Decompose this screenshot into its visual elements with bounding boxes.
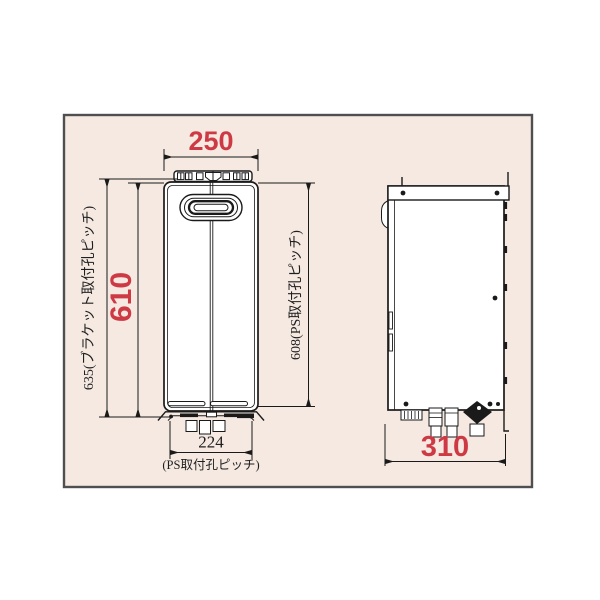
bottom-pitch-value: 224 — [198, 433, 224, 452]
side-view — [382, 172, 510, 437]
bracket-pitch-label: 635(ブラケット取付孔ピッチ) — [80, 206, 97, 391]
front-exhaust-vent — [180, 195, 242, 221]
front-height-label: 610 — [105, 272, 138, 322]
ps-pitch-right-label: 608(PS取付孔ピッチ) — [288, 230, 304, 360]
front-width-label: 250 — [188, 126, 233, 156]
bottom-pitch-caption: (PS取付孔ピッチ) — [162, 458, 259, 472]
side-depth-label: 310 — [421, 431, 469, 463]
dimension-diagram: 250 635(ブラケット取付孔ピッチ) 610 608(PS取付孔ピッチ) 2… — [0, 0, 600, 600]
front-view — [158, 171, 264, 434]
side-body — [388, 186, 504, 410]
page: 250 635(ブラケット取付孔ピッチ) 610 608(PS取付孔ピッチ) 2… — [0, 0, 600, 600]
